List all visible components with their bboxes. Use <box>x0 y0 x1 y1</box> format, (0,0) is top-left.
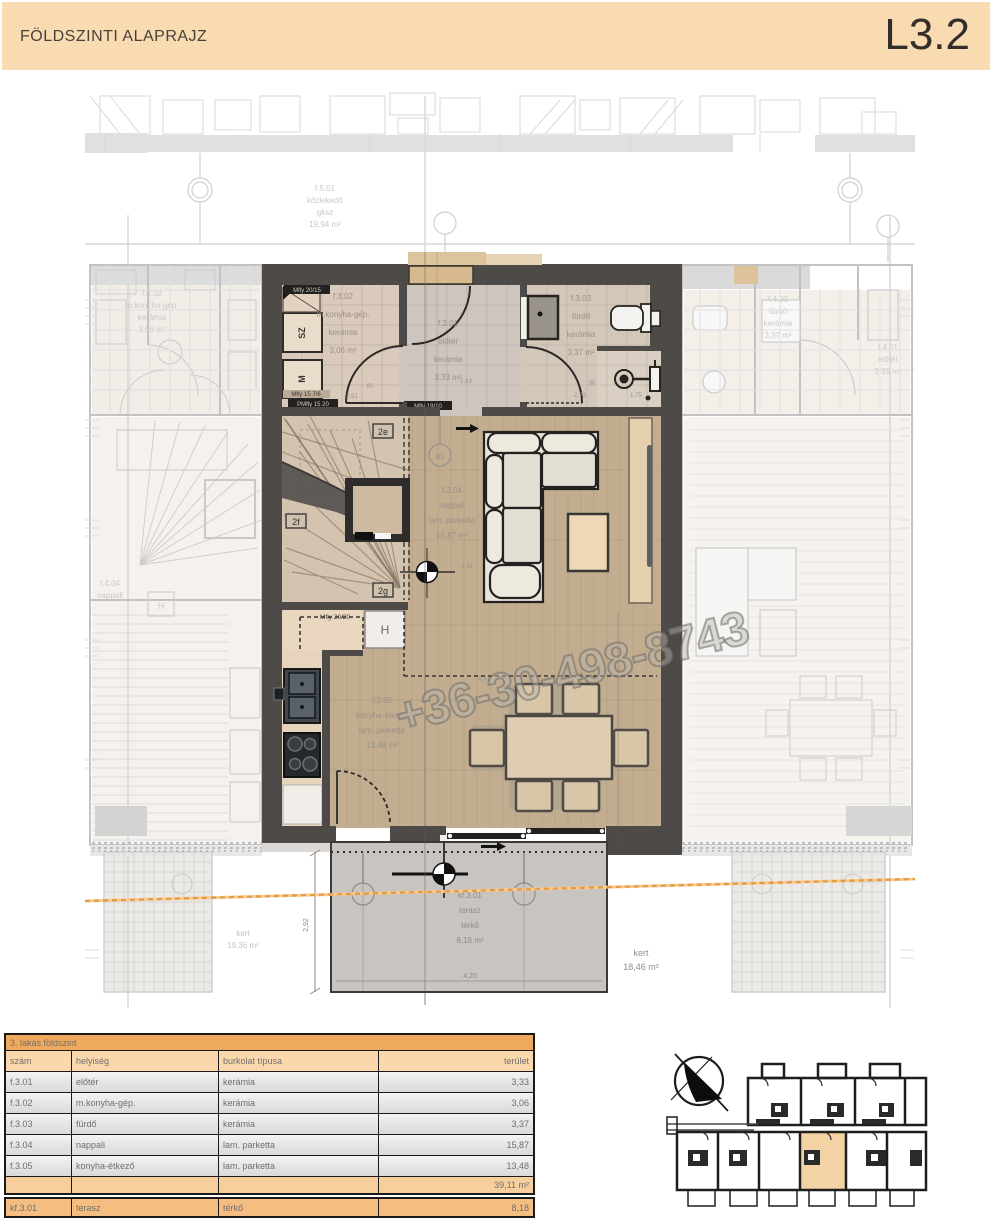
svg-text:előtér: előtér <box>438 337 458 346</box>
svg-text:SZ: SZ <box>297 327 307 339</box>
svg-text:19,94 m²: 19,94 m² <box>309 220 341 229</box>
svg-text:nappali: nappali <box>439 501 465 510</box>
svg-text:H: H <box>381 623 390 637</box>
svg-text:lam. parketta: lam. parketta <box>429 516 476 525</box>
svg-text:f.4.04: f.4.04 <box>100 579 121 588</box>
svg-text:8,18 m²: 8,18 m² <box>456 936 483 945</box>
svg-text:2g: 2g <box>378 586 388 596</box>
svg-text:2f: 2f <box>292 517 300 527</box>
svg-text:kerámia: kerámia <box>764 319 793 328</box>
svg-text:4,20: 4,20 <box>463 973 477 980</box>
svg-text:3,33 m²: 3,33 m² <box>434 373 461 382</box>
svg-text:terasz: terasz <box>459 906 481 915</box>
svg-text:f.3.03: f.3.03 <box>571 294 592 303</box>
svg-text:f.3.05: f.3.05 <box>372 696 393 705</box>
svg-text:m.konyha-gép.: m.konyha-gép. <box>317 310 370 319</box>
svg-text:15,87 m²: 15,87 m² <box>436 531 468 540</box>
svg-text:közlekedő: közlekedő <box>307 196 344 205</box>
svg-text:fürdő: fürdő <box>769 307 788 316</box>
svg-text:2,91: 2,91 <box>346 394 358 400</box>
svg-text:1,75: 1,75 <box>630 393 642 399</box>
svg-text:Mfly 20/20: Mfly 20/20 <box>320 614 350 621</box>
svg-text:kert: kert <box>236 929 250 938</box>
svg-text:f.3.04: f.3.04 <box>442 486 463 495</box>
svg-text:m.konyha-gép.: m.konyha-gép. <box>126 301 179 310</box>
svg-text:3,06 m²: 3,06 m² <box>329 346 356 355</box>
svg-text:f.3.01: f.3.01 <box>438 319 459 328</box>
svg-text:kerámia: kerámia <box>434 355 463 364</box>
svg-text:3,37 m²: 3,37 m² <box>567 348 594 357</box>
svg-text:f.5.01: f.5.01 <box>315 184 336 193</box>
svg-text:f.4.01: f.4.01 <box>878 343 899 352</box>
svg-text:3,33 m²: 3,33 m² <box>874 367 901 376</box>
svg-text:fürdő: fürdő <box>572 312 591 321</box>
svg-text:Mfly 20/15: Mfly 20/15 <box>293 288 321 294</box>
svg-text:2,92: 2,92 <box>303 918 310 932</box>
svg-text:2,73: 2,73 <box>574 393 586 399</box>
svg-text:4,41: 4,41 <box>461 564 473 570</box>
svg-text:85: 85 <box>367 384 374 390</box>
svg-text:H: H <box>158 601 165 611</box>
svg-text:f.3.02: f.3.02 <box>333 292 354 301</box>
svg-text:M: M <box>297 375 307 383</box>
svg-text:kerámia: kerámia <box>138 313 167 322</box>
svg-text:f.4.03: f.4.03 <box>768 295 789 304</box>
svg-text:19,36 m²: 19,36 m² <box>227 941 259 950</box>
svg-text:13,48 m²: 13,48 m² <box>366 741 398 750</box>
svg-text:B1: B1 <box>436 454 445 461</box>
svg-text:kerámia: kerámia <box>567 330 596 339</box>
svg-text:kerámia: kerámia <box>329 328 358 337</box>
svg-text:2e: 2e <box>378 427 388 437</box>
svg-text:1,63: 1,63 <box>460 379 472 385</box>
svg-text:nappali: nappali <box>97 591 123 600</box>
svg-text:3,37 m²: 3,37 m² <box>764 331 791 340</box>
svg-text:18,46 m²: 18,46 m² <box>623 962 659 972</box>
svg-text:térkő: térkő <box>461 921 479 930</box>
svg-text:Mfly 15 7/6: Mfly 15 7/6 <box>291 392 321 398</box>
svg-text:gksz: gksz <box>317 208 333 217</box>
svg-text:kert: kert <box>633 948 649 958</box>
svg-text:előtér: előtér <box>878 355 898 364</box>
svg-text:90: 90 <box>589 381 596 387</box>
